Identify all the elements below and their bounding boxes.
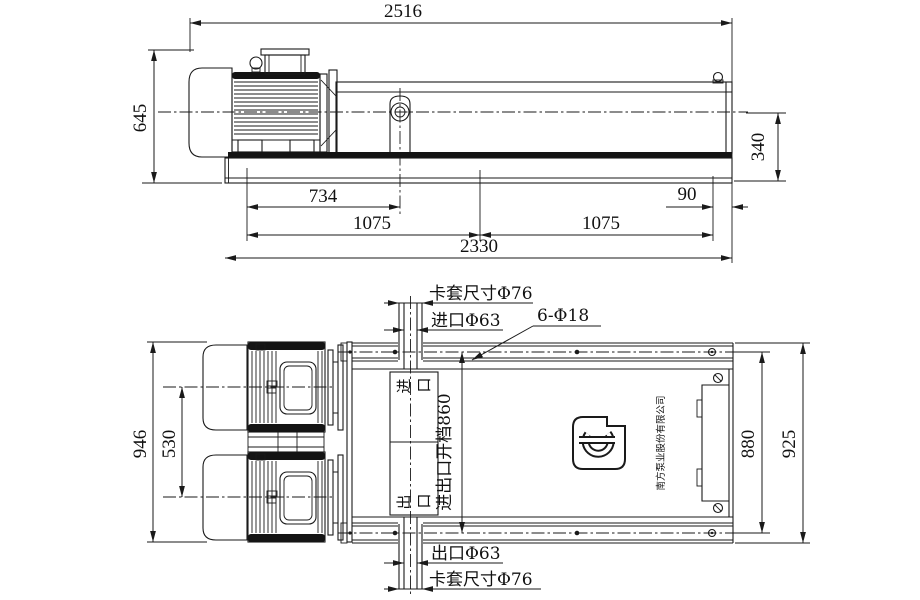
anchor-dot [393, 350, 398, 355]
anchor-dot [348, 350, 351, 353]
port-box: 进 口 出 口 [390, 372, 438, 515]
motor-foot-left [238, 140, 262, 152]
dim-2516-label: 2516 [384, 1, 422, 22]
motor-top-band [232, 72, 320, 79]
side-dimensions: 2516 645 340 734 90 1075 1075 2330 [130, 1, 786, 263]
motor1-plan [203, 342, 325, 432]
adapter2-ribs [333, 472, 338, 523]
barrel-outline [336, 82, 732, 153]
hinge-bottom [697, 469, 702, 486]
pump-drawing: 2516 645 340 734 90 1075 1075 2330 [0, 0, 920, 600]
outlet-box-char1: 出 [395, 494, 413, 509]
ports [399, 296, 422, 596]
company-name: 南方泵业股份有限公司 [655, 395, 667, 490]
ferrule-top-label: 卡套尺寸Φ76 [429, 284, 533, 304]
motor2-plan [203, 452, 325, 542]
base-rails-plan [338, 343, 745, 543]
adapter1-b [338, 345, 343, 430]
tank-plan [352, 343, 733, 543]
dim-860-label: 进出口开档860 [435, 393, 455, 510]
door-panel [697, 374, 729, 513]
inlet-label: 进口Φ63 [431, 311, 501, 331]
pump-barrel-side [336, 73, 732, 215]
screw-slot [715, 505, 721, 511]
body-band-top [248, 452, 325, 460]
terminal-box-inner [284, 366, 312, 410]
ferrule-bottom-label: 卡套尺寸Φ76 [429, 570, 533, 590]
anchor-dot [393, 531, 398, 536]
inlet-box-char1: 进 [395, 378, 413, 393]
dim-880-label: 880 [738, 430, 759, 459]
anchor-dot [711, 532, 713, 534]
outlet-box-char2: 口 [415, 493, 433, 508]
side-view: 2516 645 340 734 90 1075 1075 2330 [130, 1, 786, 263]
dim-925-label: 925 [779, 430, 800, 459]
inter-motor-support [248, 432, 324, 452]
motor-adapters [328, 345, 343, 540]
port-callouts-bottom: 出口Φ63 卡套尺寸Φ76 [384, 544, 541, 590]
terminal-box-lid [261, 49, 309, 55]
base-frame-side [225, 152, 732, 183]
body-band-bottom [248, 424, 325, 432]
dim-340-label: 340 [748, 133, 769, 162]
fan-cover [203, 345, 247, 430]
eye-bolt-icon [250, 57, 262, 69]
technical-drawing-canvas: 2516 645 340 734 90 1075 1075 2330 [0, 0, 920, 600]
dim-1075-right-label: 1075 [582, 213, 620, 234]
terminal-box-inner [284, 476, 312, 520]
fan-cover [203, 455, 247, 540]
base-box [225, 158, 732, 183]
anchor-dot [348, 531, 351, 534]
bed-plate [228, 152, 732, 158]
anchor-dot [711, 351, 713, 353]
dim-530-label: 530 [159, 430, 180, 459]
adapter1-a [328, 350, 333, 425]
dim-734-label: 734 [309, 186, 338, 207]
body-band-bottom [248, 534, 325, 542]
plan-dimensions: 946 530 880 925 [130, 342, 810, 543]
mounting-plate [347, 342, 352, 542]
anchor-dot [575, 531, 580, 536]
adapter1-ribs [333, 362, 338, 413]
terminal-box [265, 55, 305, 74]
dim-2330-label: 2330 [460, 236, 498, 257]
anchor-dot [575, 350, 580, 355]
holes-label: 6-Φ18 [537, 306, 589, 326]
dim-1075-left-label: 1075 [353, 213, 391, 234]
adapter2-b [338, 455, 343, 540]
dim-90-label: 90 [678, 184, 697, 205]
terminal-box [280, 472, 316, 524]
motor-foot-right [290, 140, 314, 152]
motor-fins [234, 82, 318, 134]
outlet-label: 出口Φ63 [431, 544, 501, 564]
door-outline [702, 385, 729, 501]
hinge-top [697, 400, 702, 417]
dim-645-label: 645 [130, 104, 151, 133]
inlet-box-char2: 口 [415, 377, 433, 392]
plan-view: 进 口 出 口 进出口开档860 南方泵业股份有限公司 [130, 284, 810, 596]
adapter2-a [328, 460, 333, 535]
body-band-top [248, 342, 325, 350]
cnp-logo-icon [573, 417, 625, 469]
dim-946-label: 946 [130, 430, 151, 459]
tank-outline [352, 343, 733, 543]
terminal-box [280, 362, 316, 414]
fan-cover [189, 68, 232, 157]
motor-side-view [189, 49, 337, 157]
screw-slot [715, 375, 721, 381]
